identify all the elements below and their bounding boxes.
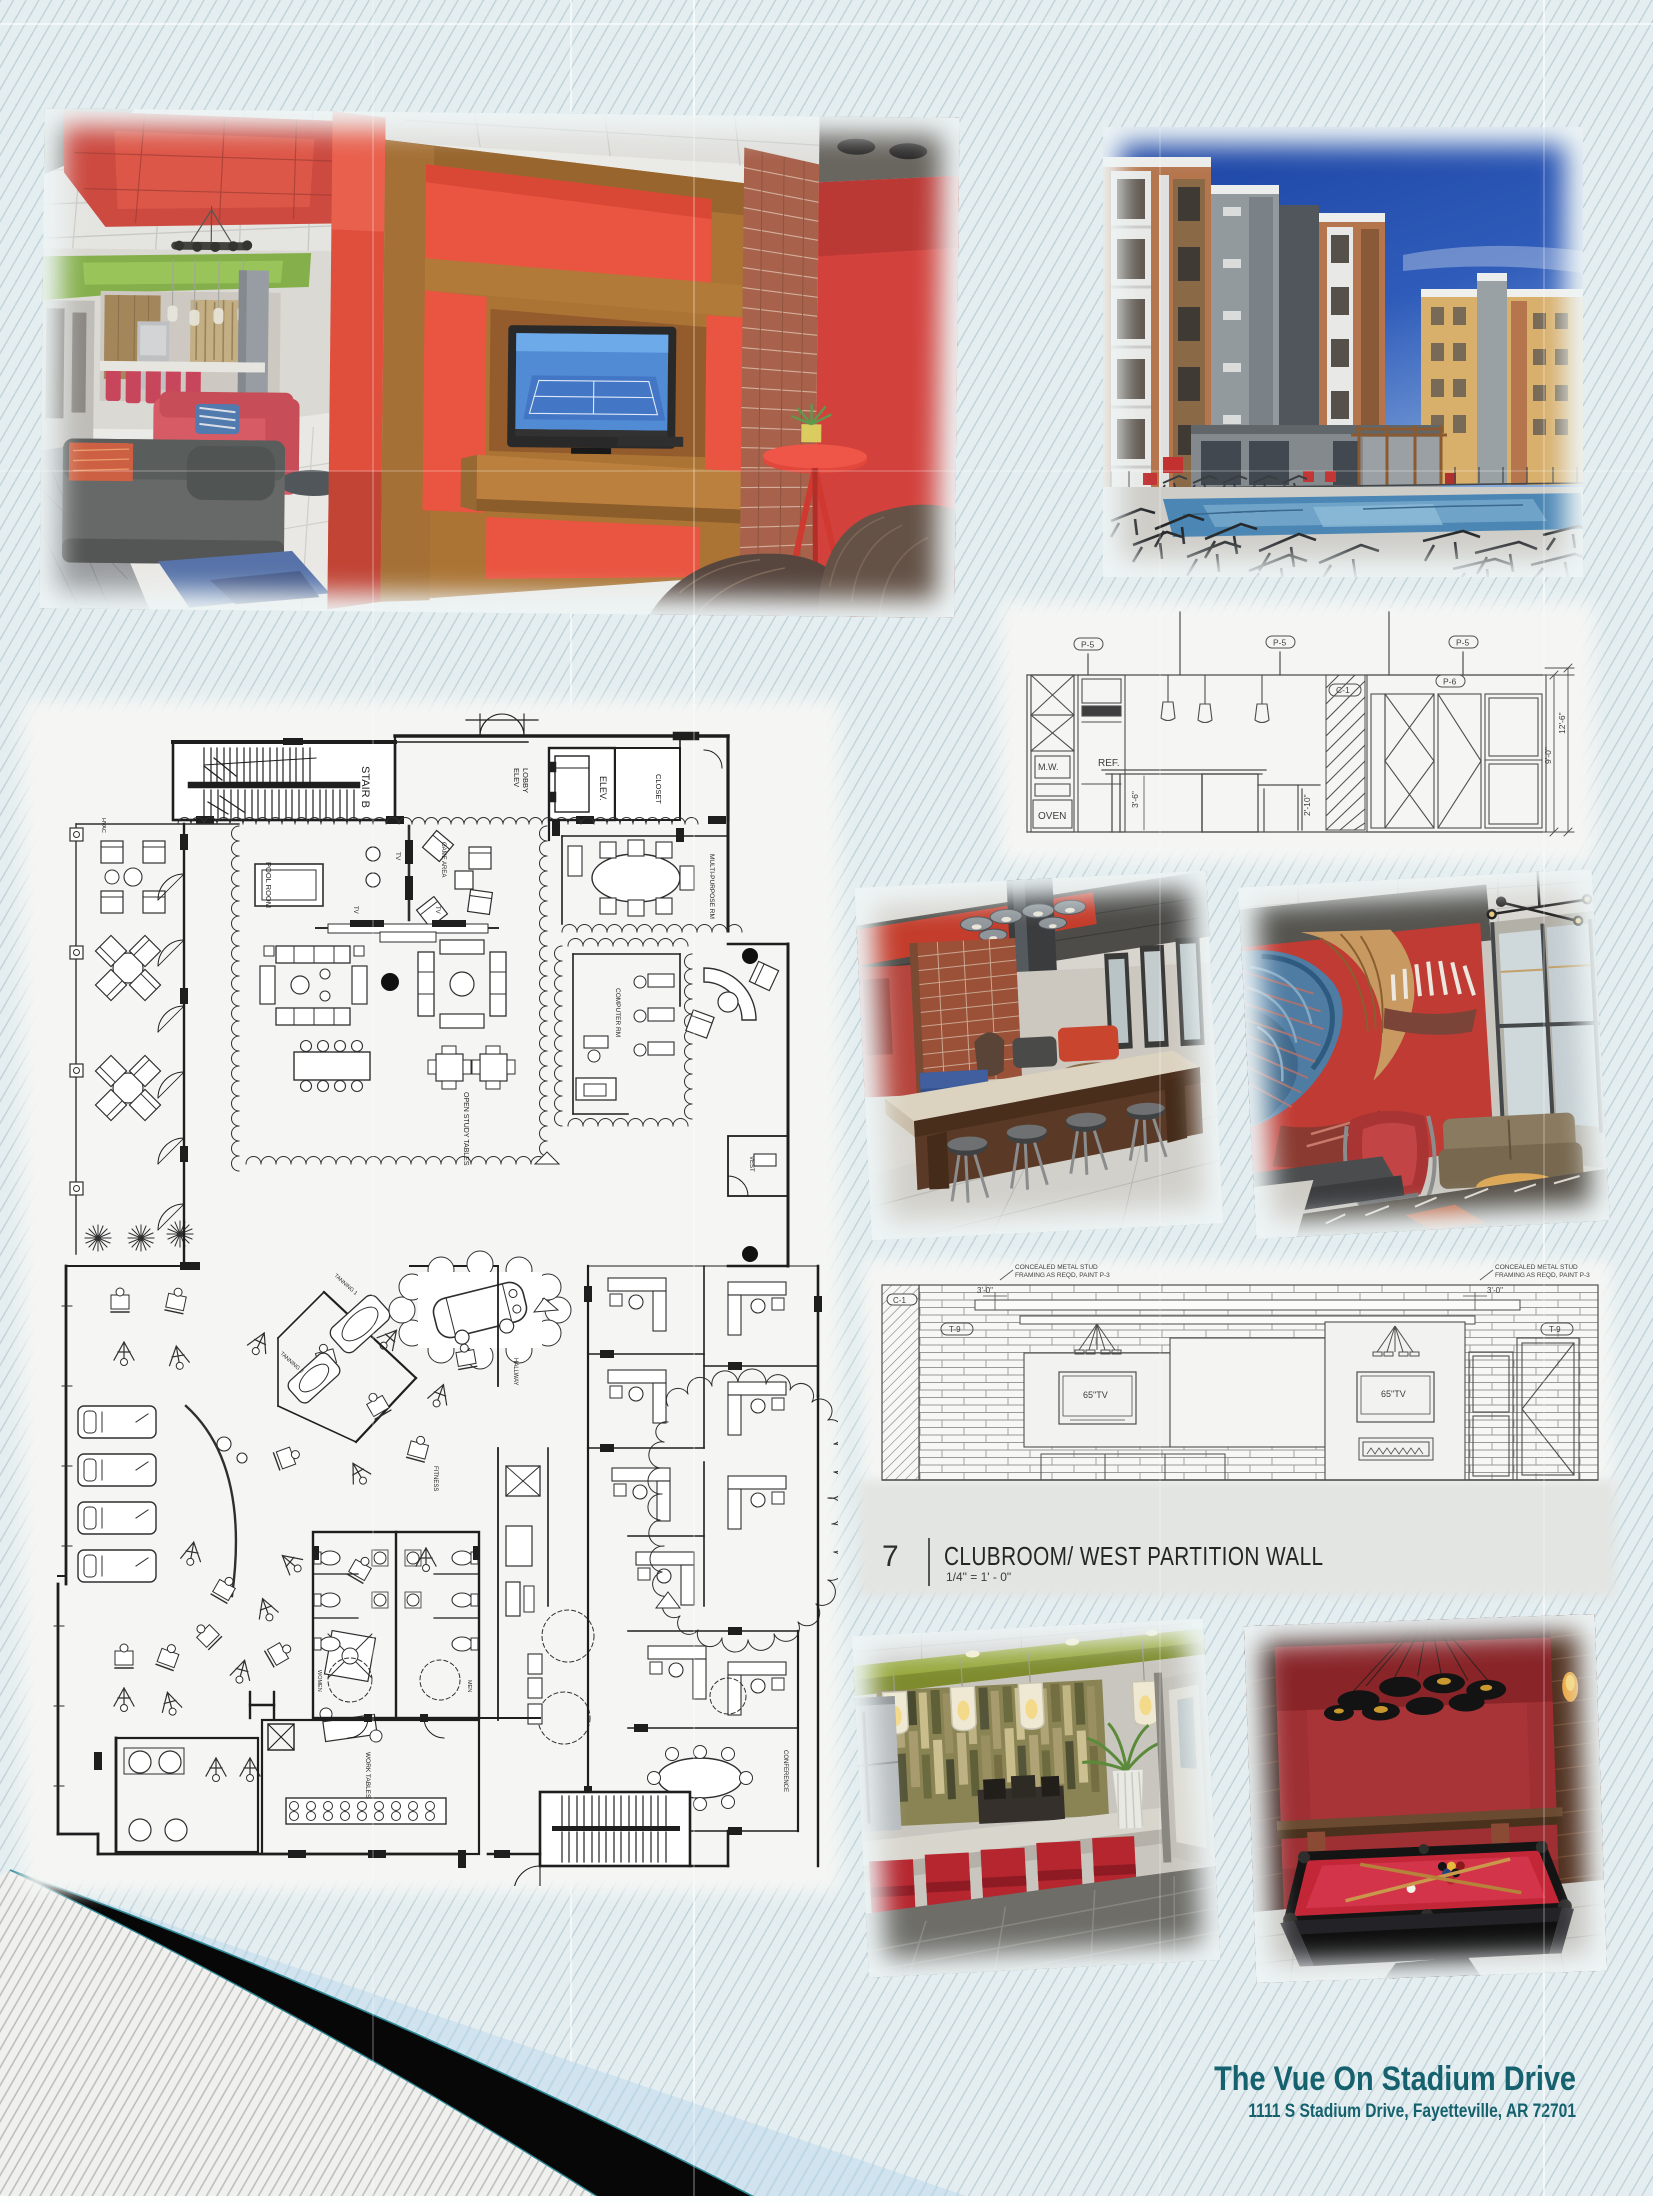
svg-text:65"TV: 65"TV bbox=[1381, 1389, 1406, 1399]
svg-text:OVEN: OVEN bbox=[1038, 811, 1066, 822]
svg-text:POOL ROOM: POOL ROOM bbox=[264, 862, 273, 908]
svg-text:T-9: T-9 bbox=[1549, 1325, 1561, 1334]
svg-text:STAIR B: STAIR B bbox=[359, 766, 371, 808]
svg-text:TV: TV bbox=[352, 906, 358, 914]
svg-text:CONCEALED METAL STUD: CONCEALED METAL STUD bbox=[1495, 1264, 1578, 1271]
svg-text:P-5: P-5 bbox=[1081, 640, 1095, 650]
svg-text:TANNING 2: TANNING 2 bbox=[279, 1351, 305, 1375]
svg-text:3'-0": 3'-0" bbox=[977, 1286, 993, 1295]
svg-text:VEST: VEST bbox=[748, 1156, 754, 1172]
svg-text:ELEV: ELEV bbox=[512, 768, 521, 787]
svg-text:TV: TV bbox=[434, 906, 440, 914]
svg-text:65"TV: 65"TV bbox=[1083, 1390, 1108, 1400]
svg-text:CONCEALED METAL STUD: CONCEALED METAL STUD bbox=[1015, 1264, 1098, 1271]
svg-text:C-1: C-1 bbox=[1336, 685, 1350, 695]
svg-text:ELEV.: ELEV. bbox=[598, 776, 608, 801]
svg-text:LOBBY: LOBBY bbox=[521, 768, 530, 793]
svg-text:WORK TABLES: WORK TABLES bbox=[364, 1752, 371, 1799]
svg-text:HVAC: HVAC bbox=[100, 818, 106, 833]
svg-text:FITNESS: FITNESS bbox=[432, 1466, 438, 1491]
svg-text:WOMEN: WOMEN bbox=[316, 1670, 322, 1692]
svg-text:HALLWAY: HALLWAY bbox=[512, 1358, 518, 1386]
svg-text:FRAMING AS REQD, PAINT P-3: FRAMING AS REQD, PAINT P-3 bbox=[1015, 1272, 1110, 1279]
svg-text:CONFERENCE: CONFERENCE bbox=[782, 1750, 788, 1792]
svg-text:3'-6": 3'-6" bbox=[1130, 791, 1140, 808]
svg-text:MULTI-PURPOSE RM: MULTI-PURPOSE RM bbox=[708, 854, 715, 919]
svg-text:TV: TV bbox=[394, 852, 401, 861]
svg-text:TANNING 1: TANNING 1 bbox=[333, 1273, 359, 1297]
svg-text:2'-10": 2'-10" bbox=[1302, 794, 1312, 816]
svg-text:P-5: P-5 bbox=[1456, 638, 1470, 648]
svg-text:CLOSET: CLOSET bbox=[654, 774, 663, 804]
svg-text:OPEN STUDY TABLES: OPEN STUDY TABLES bbox=[462, 1092, 469, 1166]
svg-text:P-6: P-6 bbox=[1443, 677, 1457, 687]
svg-text:3'-0": 3'-0" bbox=[1487, 1286, 1503, 1295]
svg-text:MEN: MEN bbox=[466, 1680, 472, 1692]
svg-text:M.W.: M.W. bbox=[1038, 762, 1059, 772]
svg-text:12'-6": 12'-6" bbox=[1557, 712, 1567, 734]
svg-text:COMPUTER RM: COMPUTER RM bbox=[614, 988, 621, 1037]
svg-text:REF.: REF. bbox=[1098, 758, 1120, 769]
svg-text:9'-0": 9'-0" bbox=[1543, 747, 1553, 764]
svg-text:T-9: T-9 bbox=[949, 1325, 961, 1334]
svg-text:C-1: C-1 bbox=[893, 1296, 906, 1305]
svg-text:GAME AREA: GAME AREA bbox=[440, 842, 446, 877]
svg-text:P-5: P-5 bbox=[1273, 638, 1287, 648]
